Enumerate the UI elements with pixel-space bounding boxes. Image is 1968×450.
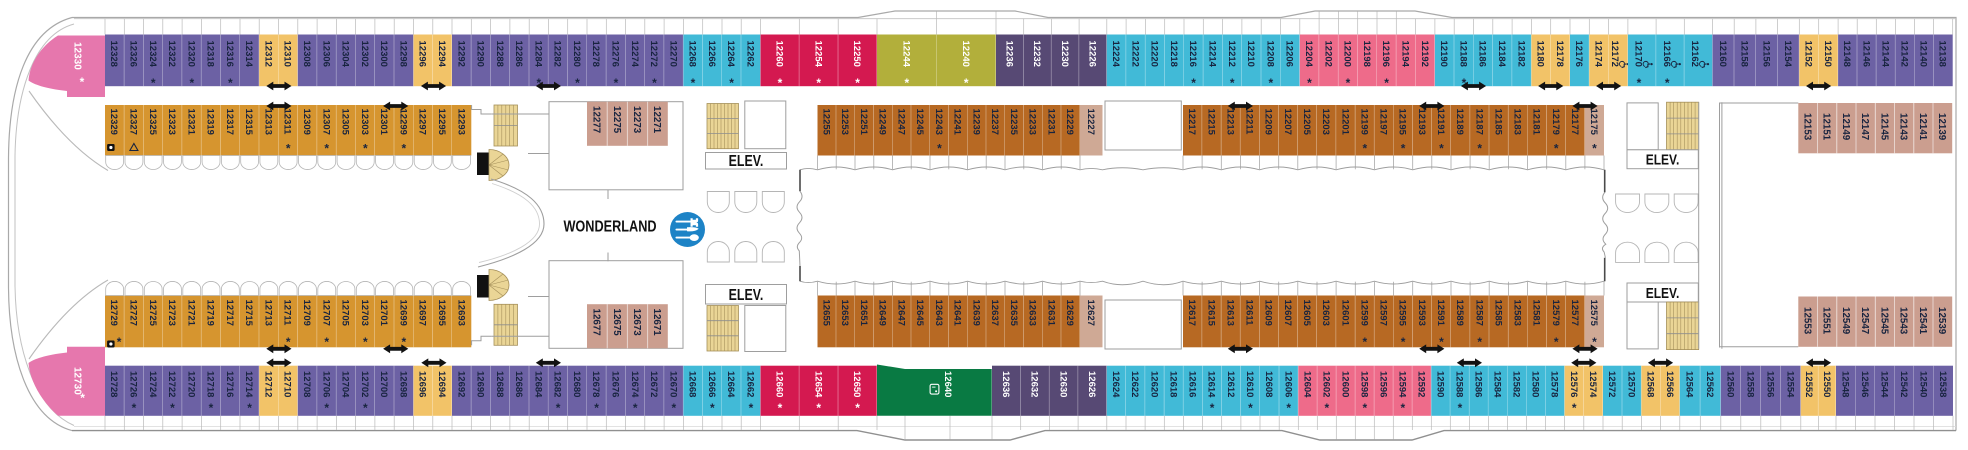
- svg-text:12666: 12666: [706, 371, 717, 397]
- svg-text:12200: 12200: [1342, 41, 1353, 67]
- svg-text:*: *: [904, 76, 909, 90]
- svg-text:12293: 12293: [455, 109, 466, 135]
- svg-text:12701: 12701: [378, 300, 389, 327]
- svg-text:12300: 12300: [378, 41, 389, 67]
- svg-text:12311: 12311: [282, 109, 293, 136]
- svg-text:12197: 12197: [1378, 109, 1389, 135]
- svg-text:12672: 12672: [648, 371, 659, 397]
- svg-text:12297: 12297: [417, 109, 428, 135]
- svg-text:12606: 12606: [1282, 371, 1293, 397]
- svg-text:12570: 12570: [1625, 371, 1636, 397]
- svg-text:12680: 12680: [571, 371, 582, 397]
- svg-text:12675: 12675: [611, 309, 622, 337]
- svg-text:12235: 12235: [1008, 109, 1019, 136]
- svg-text:12224: 12224: [1110, 41, 1121, 68]
- svg-text:12596: 12596: [1377, 371, 1388, 397]
- svg-text:12325: 12325: [147, 109, 158, 136]
- svg-text:12668: 12668: [687, 371, 698, 397]
- svg-text:12198: 12198: [1361, 41, 1372, 67]
- svg-text:*: *: [778, 76, 783, 90]
- svg-text:12210: 12210: [1245, 41, 1256, 67]
- svg-text:12220: 12220: [1149, 41, 1160, 67]
- svg-text:*: *: [1554, 142, 1559, 156]
- svg-text:12607: 12607: [1282, 300, 1293, 326]
- svg-text:12709: 12709: [301, 300, 312, 326]
- svg-text:12617: 12617: [1186, 300, 1197, 326]
- svg-text:12641: 12641: [952, 300, 963, 327]
- svg-text:*: *: [1307, 76, 1312, 90]
- svg-text:12239: 12239: [971, 109, 982, 135]
- svg-text:12179: 12179: [1550, 109, 1561, 135]
- svg-text:12580: 12580: [1530, 371, 1541, 397]
- svg-text:*: *: [1400, 401, 1405, 415]
- svg-text:12577: 12577: [1569, 300, 1580, 326]
- svg-text:12549: 12549: [1840, 307, 1851, 335]
- svg-text:*: *: [1439, 142, 1444, 156]
- svg-text:12301: 12301: [378, 109, 389, 136]
- svg-text:12616: 12616: [1187, 371, 1198, 397]
- svg-text:WONDERLAND: WONDERLAND: [563, 218, 656, 235]
- svg-text:12547: 12547: [1859, 307, 1870, 335]
- svg-text:12175: 12175: [1588, 109, 1599, 136]
- svg-text:12241: 12241: [952, 109, 963, 136]
- svg-text:12588: 12588: [1454, 371, 1465, 397]
- svg-text:12190: 12190: [1438, 41, 1449, 67]
- svg-text:12187: 12187: [1473, 109, 1484, 135]
- svg-text:12705: 12705: [340, 300, 351, 327]
- svg-text:12286: 12286: [513, 41, 524, 67]
- svg-text:*: *: [324, 142, 329, 156]
- svg-text:12587: 12587: [1473, 300, 1484, 326]
- svg-text:12627: 12627: [1085, 300, 1096, 326]
- svg-text:*: *: [1191, 76, 1196, 90]
- svg-text:12636: 12636: [1000, 371, 1011, 397]
- svg-text:12613: 12613: [1224, 300, 1235, 326]
- svg-text:12653: 12653: [839, 300, 850, 326]
- svg-text:12250: 12250: [851, 41, 862, 67]
- svg-text:12707: 12707: [320, 300, 331, 326]
- svg-text:12146: 12146: [1860, 41, 1871, 67]
- svg-text:12138: 12138: [1937, 41, 1948, 67]
- svg-text:12724: 12724: [147, 371, 158, 398]
- svg-text:12304: 12304: [340, 41, 351, 68]
- svg-text:12728: 12728: [108, 371, 119, 397]
- svg-text:12211: 12211: [1244, 109, 1255, 136]
- svg-text:12212: 12212: [1226, 41, 1237, 67]
- svg-text:*: *: [1477, 335, 1482, 349]
- svg-text:*: *: [1362, 335, 1367, 349]
- svg-text:*: *: [749, 401, 754, 415]
- svg-text:12660: 12660: [774, 371, 785, 397]
- svg-text:*: *: [1554, 335, 1559, 349]
- svg-text:12202: 12202: [1322, 41, 1333, 67]
- svg-text:12182: 12182: [1515, 41, 1526, 67]
- svg-text:*: *: [691, 76, 696, 90]
- svg-text:12611: 12611: [1244, 300, 1255, 327]
- svg-text:*: *: [556, 401, 561, 415]
- svg-text:12713: 12713: [263, 300, 274, 326]
- svg-text:12264: 12264: [725, 41, 736, 68]
- svg-text:12635: 12635: [1008, 300, 1019, 327]
- svg-text:12305: 12305: [340, 109, 351, 136]
- svg-text:12564: 12564: [1684, 371, 1695, 398]
- svg-text:12278: 12278: [590, 41, 601, 67]
- svg-text:12540: 12540: [1917, 371, 1928, 397]
- svg-text:12632: 12632: [1029, 371, 1040, 397]
- svg-text:*: *: [1346, 76, 1351, 90]
- svg-text:12698: 12698: [397, 371, 408, 397]
- svg-text:12292: 12292: [455, 41, 466, 67]
- svg-text:12662: 12662: [745, 371, 756, 397]
- svg-text:12554: 12554: [1784, 371, 1795, 398]
- svg-text:12551: 12551: [1821, 307, 1832, 335]
- svg-text:12255: 12255: [821, 109, 832, 136]
- svg-text:12643: 12643: [933, 300, 944, 326]
- svg-text:12207: 12207: [1282, 109, 1293, 135]
- svg-text:12548: 12548: [1839, 371, 1850, 397]
- svg-text:12251: 12251: [858, 109, 869, 136]
- svg-text:12624: 12624: [1110, 371, 1121, 398]
- svg-text:12272: 12272: [648, 41, 659, 67]
- svg-text:*: *: [937, 142, 942, 156]
- svg-text:12216: 12216: [1187, 41, 1198, 67]
- svg-text:12213: 12213: [1224, 109, 1235, 135]
- svg-text:12231: 12231: [1046, 109, 1057, 136]
- svg-text:12670: 12670: [667, 371, 678, 397]
- svg-text:12204: 12204: [1303, 41, 1314, 68]
- svg-text:*: *: [324, 401, 329, 415]
- svg-text:12191: 12191: [1435, 109, 1446, 136]
- svg-text:12664: 12664: [725, 371, 736, 398]
- svg-text:12218: 12218: [1168, 41, 1179, 67]
- svg-text:*: *: [132, 401, 137, 415]
- svg-text:12203: 12203: [1320, 109, 1331, 135]
- svg-text:12276: 12276: [610, 41, 621, 67]
- svg-text:12199: 12199: [1358, 109, 1369, 135]
- svg-text:12184: 12184: [1496, 41, 1507, 68]
- svg-text:12695: 12695: [436, 300, 447, 327]
- svg-text:12583: 12583: [1512, 300, 1523, 326]
- svg-text:*: *: [1324, 401, 1329, 415]
- svg-text:12542: 12542: [1898, 371, 1909, 397]
- svg-text:12676: 12676: [610, 371, 621, 397]
- svg-text:*: *: [1286, 401, 1291, 415]
- svg-text:12594: 12594: [1396, 371, 1407, 398]
- svg-text:12686: 12686: [513, 371, 524, 397]
- svg-text:12630: 12630: [1057, 371, 1068, 397]
- svg-text:12720: 12720: [185, 371, 196, 397]
- svg-text:12326: 12326: [128, 41, 139, 67]
- svg-text:*: *: [1458, 401, 1463, 415]
- svg-text:12693: 12693: [455, 300, 466, 326]
- svg-text:12637: 12637: [989, 300, 1000, 326]
- svg-text:12655: 12655: [821, 300, 832, 327]
- svg-text:12322: 12322: [166, 41, 177, 67]
- svg-text:12716: 12716: [224, 371, 235, 397]
- svg-text:12188: 12188: [1457, 41, 1468, 67]
- svg-text:12544: 12544: [1878, 371, 1889, 398]
- svg-text:*: *: [324, 335, 329, 349]
- svg-text:*: *: [575, 76, 580, 90]
- svg-text:12153: 12153: [1801, 113, 1812, 141]
- svg-text:12295: 12295: [436, 109, 447, 136]
- svg-text:12145: 12145: [1878, 113, 1889, 141]
- svg-text:12694: 12694: [436, 371, 447, 398]
- svg-text:12704: 12704: [340, 371, 351, 398]
- svg-text:*: *: [710, 401, 715, 415]
- svg-text:12217: 12217: [1186, 109, 1197, 135]
- svg-text:*: *: [189, 76, 194, 90]
- svg-text:*: *: [1268, 76, 1273, 90]
- svg-text:12608: 12608: [1263, 371, 1274, 397]
- svg-text:12288: 12288: [494, 41, 505, 67]
- svg-text:12562: 12562: [1704, 371, 1715, 397]
- svg-text:12320: 12320: [185, 41, 196, 67]
- svg-text:12302: 12302: [359, 41, 370, 67]
- svg-text:*: *: [151, 76, 156, 90]
- svg-text:12154: 12154: [1782, 41, 1793, 68]
- svg-text:12640: 12640: [942, 371, 953, 397]
- svg-text:12328: 12328: [108, 41, 119, 67]
- svg-text:12282: 12282: [552, 41, 563, 67]
- svg-text:12699: 12699: [397, 300, 408, 326]
- svg-text:12233: 12233: [1027, 109, 1038, 135]
- svg-text:12545: 12545: [1878, 307, 1889, 335]
- svg-text:12631: 12631: [1046, 300, 1057, 327]
- svg-text:*: *: [363, 142, 368, 156]
- svg-text:12243: 12243: [933, 109, 944, 135]
- svg-text:12177: 12177: [1569, 109, 1580, 135]
- svg-text:12633: 12633: [1027, 300, 1038, 326]
- svg-text:*: *: [117, 335, 122, 349]
- svg-text:12579: 12579: [1550, 300, 1561, 326]
- svg-text:12702: 12702: [359, 371, 370, 397]
- svg-text:*: *: [671, 401, 676, 415]
- svg-text:12140: 12140: [1918, 41, 1929, 67]
- svg-text:12158: 12158: [1739, 41, 1750, 67]
- svg-text:12209: 12209: [1263, 109, 1274, 135]
- svg-text:12671: 12671: [651, 309, 662, 337]
- svg-text:12721: 12721: [185, 300, 196, 327]
- svg-text:12151: 12151: [1821, 113, 1832, 141]
- svg-text:12162: 12162: [1689, 41, 1700, 67]
- svg-text:12703: 12703: [359, 300, 370, 326]
- svg-text:12650: 12650: [851, 371, 862, 397]
- svg-text:*: *: [1592, 142, 1597, 156]
- svg-text:12330: 12330: [71, 42, 82, 70]
- svg-text:*: *: [1665, 76, 1670, 90]
- svg-text:*: *: [80, 391, 85, 405]
- svg-text:12316: 12316: [224, 41, 235, 67]
- svg-text:12284: 12284: [532, 41, 543, 68]
- svg-text:12309: 12309: [301, 109, 312, 135]
- svg-text:12696: 12696: [417, 371, 428, 397]
- svg-text:*: *: [614, 76, 619, 90]
- svg-text:12150: 12150: [1822, 41, 1833, 67]
- svg-text:12323: 12323: [166, 109, 177, 135]
- svg-text:12274: 12274: [629, 41, 640, 68]
- svg-text:12602: 12602: [1320, 371, 1331, 397]
- svg-text:*: *: [1362, 401, 1367, 415]
- svg-text:12244: 12244: [900, 41, 911, 68]
- svg-text:12186: 12186: [1477, 41, 1488, 67]
- svg-text:12222: 12222: [1129, 41, 1140, 67]
- svg-text:12654: 12654: [812, 371, 823, 398]
- svg-text:12308: 12308: [301, 41, 312, 67]
- svg-text:12266: 12266: [706, 41, 717, 67]
- svg-text:*: *: [778, 401, 783, 415]
- svg-text:*: *: [1230, 76, 1235, 90]
- svg-text:12612: 12612: [1225, 371, 1236, 397]
- svg-text:12298: 12298: [397, 41, 408, 67]
- svg-text:12192: 12192: [1419, 41, 1430, 67]
- svg-text:*: *: [1572, 401, 1577, 415]
- svg-text:12558: 12558: [1744, 371, 1755, 397]
- svg-text:12692: 12692: [455, 371, 466, 397]
- svg-text:*: *: [401, 142, 406, 156]
- svg-text:12706: 12706: [320, 371, 331, 397]
- svg-text:12262: 12262: [745, 41, 756, 67]
- svg-text:12601: 12601: [1339, 300, 1350, 327]
- svg-text:*: *: [964, 76, 969, 90]
- svg-text:12604: 12604: [1301, 371, 1312, 398]
- svg-text:12142: 12142: [1899, 41, 1910, 67]
- svg-text:12321: 12321: [185, 109, 196, 136]
- svg-text:12144: 12144: [1879, 41, 1890, 68]
- svg-text:*: *: [816, 76, 821, 90]
- svg-text:12294: 12294: [436, 41, 447, 68]
- svg-text:12181: 12181: [1531, 109, 1542, 136]
- svg-text:12614: 12614: [1206, 371, 1217, 398]
- svg-text:12715: 12715: [243, 300, 254, 327]
- svg-text:12622: 12622: [1129, 371, 1140, 397]
- svg-text:12708: 12708: [301, 371, 312, 397]
- svg-text:*: *: [855, 76, 860, 90]
- svg-text:12710: 12710: [282, 371, 293, 397]
- svg-text:12310: 12310: [282, 41, 293, 67]
- svg-text:12313: 12313: [263, 109, 274, 135]
- svg-text:12546: 12546: [1859, 371, 1870, 397]
- svg-text:12249: 12249: [877, 109, 888, 135]
- svg-text:12194: 12194: [1400, 41, 1411, 68]
- svg-text:12273: 12273: [631, 106, 642, 134]
- svg-text:12543: 12543: [1898, 307, 1909, 335]
- svg-text:12280: 12280: [571, 41, 582, 67]
- svg-text:12682: 12682: [552, 371, 563, 397]
- svg-text:12296: 12296: [417, 41, 428, 67]
- svg-text:12260: 12260: [774, 41, 785, 67]
- svg-text:12271: 12271: [651, 106, 662, 134]
- svg-text:12718: 12718: [205, 371, 216, 397]
- svg-text:12318: 12318: [205, 41, 216, 67]
- svg-text:*: *: [855, 401, 860, 415]
- svg-text:12172: 12172: [1609, 41, 1620, 67]
- svg-text:12576: 12576: [1568, 371, 1579, 397]
- svg-text:12229: 12229: [1064, 109, 1075, 135]
- svg-text:*: *: [1362, 142, 1367, 156]
- svg-text:12591: 12591: [1435, 300, 1446, 327]
- svg-text:*: *: [286, 142, 291, 156]
- svg-text:12645: 12645: [914, 300, 925, 327]
- svg-text:12539: 12539: [1936, 307, 1947, 335]
- svg-text:12575: 12575: [1588, 300, 1599, 327]
- svg-text:12649: 12649: [877, 300, 888, 326]
- svg-text:12673: 12673: [631, 309, 642, 337]
- svg-text:*: *: [363, 335, 368, 349]
- svg-text:12639: 12639: [971, 300, 982, 326]
- svg-text:12723: 12723: [166, 300, 177, 326]
- svg-text:12312: 12312: [263, 41, 274, 67]
- svg-text:12684: 12684: [532, 371, 543, 398]
- svg-text:*: *: [247, 401, 252, 415]
- svg-text:*: *: [209, 401, 214, 415]
- svg-text:12201: 12201: [1339, 109, 1350, 136]
- svg-text:12180: 12180: [1535, 41, 1546, 67]
- svg-text:12729: 12729: [108, 300, 119, 326]
- svg-text:12590: 12590: [1434, 371, 1445, 397]
- svg-text:12647: 12647: [896, 300, 907, 326]
- svg-text:12609: 12609: [1263, 300, 1274, 326]
- svg-text:12141: 12141: [1917, 113, 1928, 141]
- svg-text:12143: 12143: [1898, 113, 1909, 141]
- svg-text:*: *: [1401, 335, 1406, 349]
- svg-text:12674: 12674: [629, 371, 640, 398]
- svg-text:12317: 12317: [224, 109, 235, 135]
- svg-text:12147: 12147: [1859, 113, 1870, 141]
- svg-text:12566: 12566: [1664, 371, 1675, 397]
- svg-text:12714: 12714: [243, 371, 254, 398]
- svg-text:12314: 12314: [243, 41, 254, 68]
- svg-text:*: *: [363, 401, 368, 415]
- svg-text:12582: 12582: [1511, 371, 1522, 397]
- svg-text:*: *: [729, 76, 734, 90]
- svg-text:12230: 12230: [1059, 41, 1070, 67]
- svg-text:12214: 12214: [1207, 41, 1218, 68]
- svg-text:12299: 12299: [397, 109, 408, 135]
- svg-text:12156: 12156: [1760, 41, 1771, 67]
- svg-text:*: *: [1477, 142, 1482, 156]
- svg-text:12193: 12193: [1416, 109, 1427, 135]
- svg-text:12552: 12552: [1803, 371, 1814, 397]
- svg-text:12174: 12174: [1593, 41, 1604, 68]
- svg-text:12166: 12166: [1661, 41, 1672, 67]
- svg-text:12290: 12290: [475, 41, 486, 67]
- svg-text:12306: 12306: [320, 41, 331, 67]
- svg-text:*: *: [1637, 76, 1642, 90]
- svg-text:12183: 12183: [1512, 109, 1523, 135]
- svg-text:12605: 12605: [1301, 300, 1312, 327]
- svg-text:12712: 12712: [263, 371, 274, 397]
- svg-text:12651: 12651: [858, 300, 869, 327]
- svg-text:12600: 12600: [1339, 371, 1350, 397]
- svg-text:12615: 12615: [1205, 300, 1216, 327]
- svg-text:12560: 12560: [1724, 371, 1735, 397]
- svg-text:12697: 12697: [417, 300, 428, 326]
- svg-text:12626: 12626: [1086, 371, 1097, 397]
- svg-text:12254: 12254: [812, 41, 823, 68]
- svg-text:12148: 12148: [1841, 41, 1852, 67]
- svg-text:12232: 12232: [1031, 41, 1042, 67]
- svg-text:ELEV.: ELEV.: [1646, 151, 1680, 168]
- svg-text:12568: 12568: [1645, 371, 1656, 397]
- svg-text:12227: 12227: [1085, 109, 1096, 135]
- svg-text:12725: 12725: [147, 300, 158, 327]
- svg-text:*: *: [1210, 401, 1215, 415]
- svg-text:12722: 12722: [166, 371, 177, 397]
- svg-text:12726: 12726: [128, 371, 139, 397]
- svg-text:12185: 12185: [1492, 109, 1503, 136]
- svg-text:*: *: [170, 401, 175, 415]
